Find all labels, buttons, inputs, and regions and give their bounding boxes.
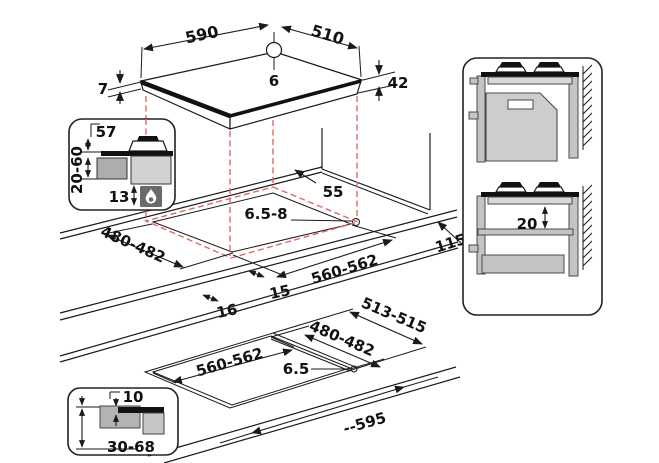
dim-flush-overall-width: --595 (341, 409, 388, 438)
hob-isometric-view: 590 510 6 7 42 (98, 21, 409, 129)
dim-hob-height: 42 (388, 74, 409, 92)
dim-flush-ledge: 10 (123, 388, 144, 406)
dim-worktop-thickness-range: 20-60 (68, 146, 86, 194)
oven-icon (486, 93, 557, 161)
hob-over-oven-section (469, 62, 592, 162)
dim-gas-inlet: 13 (109, 188, 130, 206)
dim-flush-worktop-thickness: 30-68 (107, 438, 155, 456)
dim-shelf-clearance: 20 (517, 215, 538, 233)
burner-section-inset: 57 20-60 13 (68, 119, 175, 210)
dim-cutout-width: 560-562 (309, 251, 380, 288)
dim-corner-radius-range: 6.5-8 (244, 205, 287, 223)
dim-rear-clearance: 55 (323, 183, 344, 201)
dim-hob-depth: 510 (309, 21, 347, 49)
dim-cutout-depth: 480-482 (98, 222, 168, 266)
flush-cutout-dimensions: 513-515 480-482 560-562 6.5 --595 (153, 294, 438, 443)
dim-hob-width: 590 (184, 22, 221, 48)
drawer (482, 255, 564, 273)
flush-section-inset: 10 30-68 (68, 388, 178, 456)
dim-hob-rim: 7 (98, 80, 108, 98)
gas-flame-icon (140, 186, 162, 207)
dim-flush-corner-radius: 6.5 (283, 360, 310, 378)
fixing-hole-mark (267, 43, 282, 58)
dim-flush-inner-depth: 480-482 (307, 317, 377, 360)
dim-front-overlap: 15 (268, 281, 292, 303)
dim-flush-width: 560-562 (194, 344, 265, 380)
dim-flush-outer-depth: 513-515 (359, 294, 429, 337)
clearance-panel: 20 (463, 58, 602, 315)
dim-burner-height: 57 (96, 123, 117, 141)
installation-diagram: 55 6.5-8 115 480-482 560-562 15 16 590 5… (0, 0, 659, 463)
hob-over-shelf-section: 20 (469, 182, 592, 276)
dim-hole: 6 (269, 72, 279, 90)
